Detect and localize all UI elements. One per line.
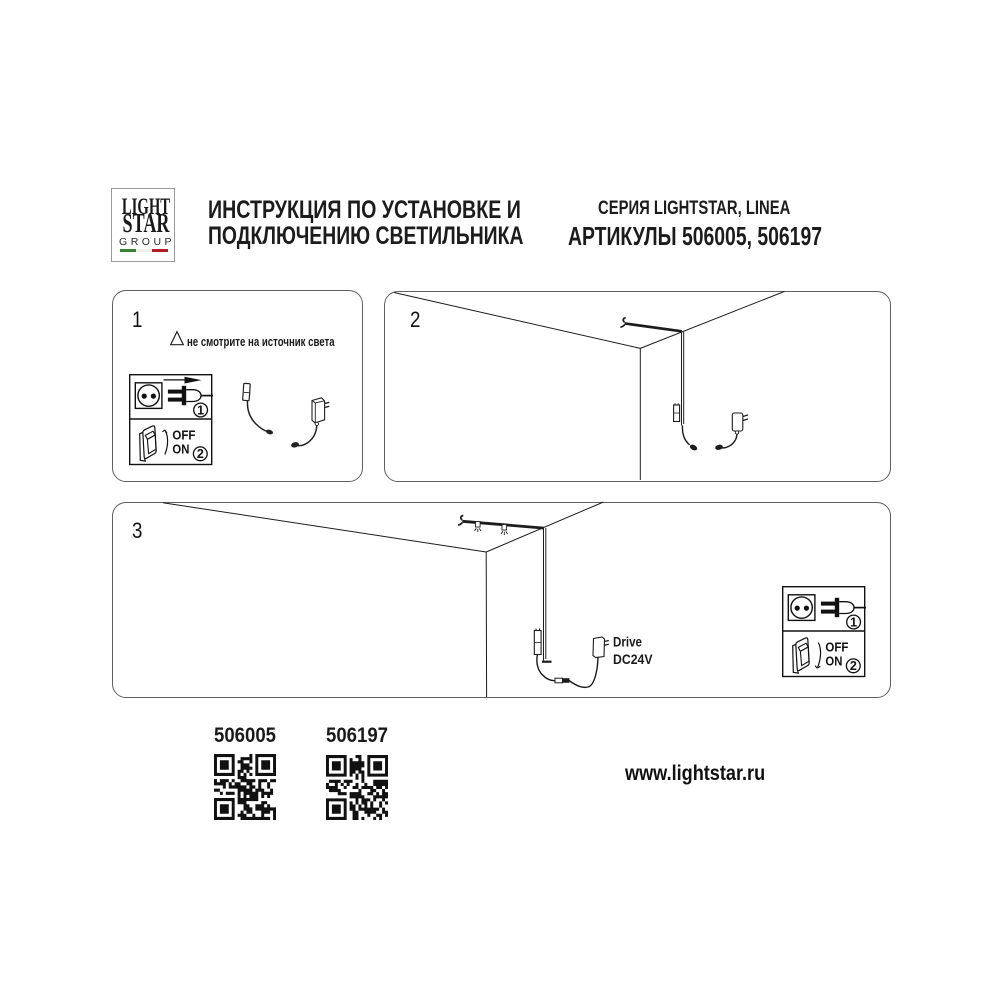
svg-text:2: 2: [197, 447, 204, 461]
svg-text:Drive: Drive: [613, 634, 642, 650]
svg-text:OFF: OFF: [172, 427, 195, 442]
svg-text:2: 2: [850, 659, 857, 673]
svg-text:DC24V: DC24V: [613, 651, 653, 667]
svg-text:ON: ON: [172, 442, 189, 457]
svg-text:ON: ON: [825, 654, 842, 669]
svg-text:1: 1: [850, 615, 857, 629]
svg-text:1: 1: [197, 403, 204, 417]
svg-text:OFF: OFF: [825, 639, 848, 654]
